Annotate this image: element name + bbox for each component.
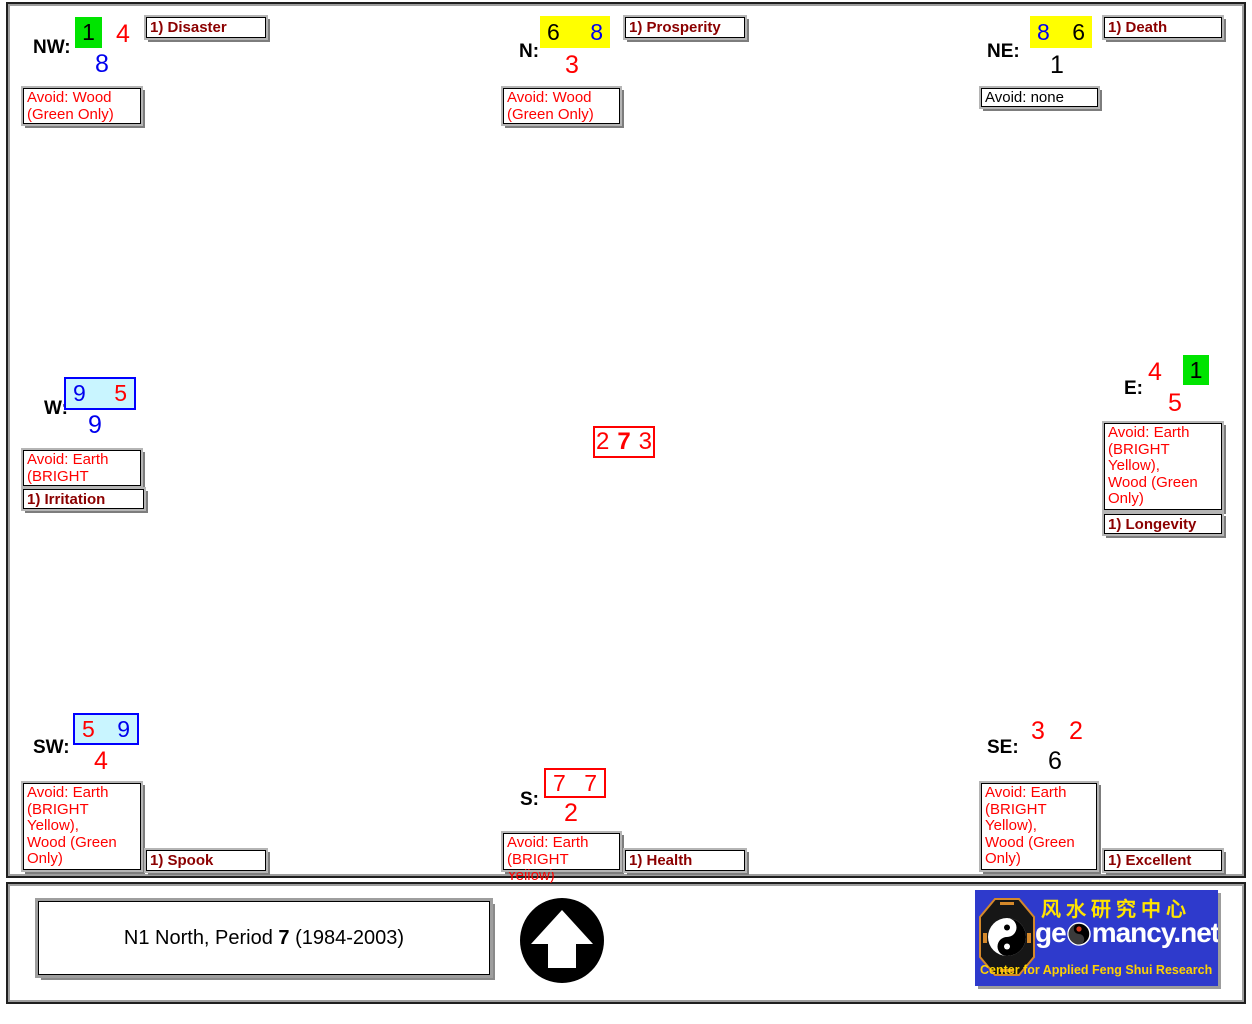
center-mountain-star: 3 [639, 428, 652, 456]
e-avoid-line: Avoid: Earth [1108, 425, 1218, 442]
geomancy-logo[interactable]: 风水研究中心 ge mancy.net Center for Applied F… [975, 890, 1218, 986]
up-arrow-icon [519, 897, 605, 984]
nw-star-box: 1 [75, 17, 102, 48]
logo-tagline: Center for Applied Feng Shui Research [980, 963, 1212, 977]
se-star-right: 2 [1069, 717, 1083, 746]
n-base-num: 3 [565, 51, 579, 80]
ne-avoid-box: Avoid: none [981, 88, 1098, 107]
e-avoid-line: Yellow), [1108, 458, 1218, 475]
n-star-box: 6 8 [540, 16, 610, 48]
se-base-num: 6 [1048, 747, 1062, 776]
e-star-box: 1 [1183, 355, 1209, 385]
sw-avoid-line: Yellow), [27, 818, 137, 835]
nw-avoid-box: Avoid: Wood (Green Only) [23, 88, 141, 124]
nw-avoid-line: Avoid: Wood [27, 90, 137, 107]
logo-wordmark-left: ge [1035, 917, 1066, 949]
se-avoid-line: Only) [985, 851, 1093, 868]
e-base-num: 5 [1168, 389, 1182, 418]
ne-star-box-num-right: 6 [1072, 19, 1085, 46]
e-avoid-line: Only) [1108, 491, 1218, 508]
sw-direction-label: SW: [33, 737, 70, 759]
yinyang-o-icon [1067, 922, 1091, 946]
s-avoid-box: Avoid: Earth (BRIGHT Yellow) [503, 833, 620, 870]
w-tag-label: 1) Irritation [27, 491, 105, 508]
e-star-box-num: 1 [1190, 357, 1203, 384]
n-avoid-line: (Green Only) [507, 107, 616, 124]
sw-base-num: 4 [94, 747, 108, 776]
s-star-box: 7 7 [544, 768, 606, 798]
ne-avoid-line: Avoid: none [985, 90, 1094, 107]
sw-avoid-line: Wood (Green [27, 835, 137, 852]
sw-star-box-num-right: 9 [117, 716, 130, 743]
logo-wordmark-right: mancy.net [1092, 917, 1218, 949]
w-star-box: 9 5 [64, 377, 136, 410]
w-star-box-num-left: 9 [73, 380, 86, 407]
se-direction-label: SE: [987, 737, 1019, 759]
n-tag-label: 1) Prosperity [629, 19, 721, 36]
ne-direction-label: NE: [987, 41, 1020, 63]
n-direction-label: N: [519, 41, 539, 63]
ne-star-box: 8 6 [1030, 16, 1092, 48]
center-star-box: 2 7 3 [593, 426, 655, 458]
se-tag-box: 1) Excellent [1104, 850, 1222, 871]
sw-tag-box: 1) Spook [146, 850, 266, 871]
chart-title-period: 7 [278, 927, 289, 950]
sw-avoid-line: (BRIGHT [27, 802, 137, 819]
chart-title-box: N1 North, Period 7 (1984-2003) [38, 901, 490, 975]
s-avoid-line: (BRIGHT Yellow) [507, 852, 616, 885]
w-base-num: 9 [88, 411, 102, 440]
s-base-num: 2 [564, 799, 578, 828]
ne-tag-label: 1) Death [1108, 19, 1167, 36]
nw-avoid-line: (Green Only) [27, 107, 137, 124]
nw-base-num: 8 [95, 50, 109, 79]
nw-tag-box: 1) Disaster [146, 17, 266, 38]
n-avoid-line: Avoid: Wood [507, 90, 616, 107]
s-star-box-num-left: 7 [553, 770, 566, 797]
n-tag-box: 1) Prosperity [625, 17, 745, 38]
logo-wordmark: ge mancy.net [1035, 917, 1218, 949]
ne-star-box-num-left: 8 [1037, 19, 1050, 46]
se-avoid-line: Wood (Green [985, 835, 1093, 852]
e-tag-box: 1) Longevity [1104, 514, 1222, 534]
se-tag-label: 1) Excellent [1108, 852, 1191, 869]
w-star-box-num-right: 5 [114, 380, 127, 407]
chart-title: N1 North, Period [124, 927, 279, 950]
center-period-star: 7 [617, 428, 630, 456]
e-star-left: 4 [1148, 358, 1162, 387]
e-avoid-box: Avoid: Earth (BRIGHT Yellow), Wood (Gree… [1104, 423, 1222, 510]
sw-star-box: 5 9 [73, 713, 139, 745]
sw-avoid-line: Avoid: Earth [27, 785, 137, 802]
s-avoid-line: Avoid: Earth [507, 835, 616, 852]
sw-tag-label: 1) Spook [150, 852, 213, 869]
nw-star-right: 4 [116, 20, 130, 49]
se-avoid-line: Yellow), [985, 818, 1093, 835]
nw-direction-label: NW: [33, 37, 71, 59]
n-star-box-num-right: 8 [590, 19, 603, 46]
se-avoid-line: (BRIGHT [985, 802, 1093, 819]
nw-star-box-num: 1 [82, 19, 95, 46]
w-avoid-box: Avoid: Earth (BRIGHT Yellow) [23, 450, 141, 486]
chart-title-years: (1984-2003) [290, 927, 405, 950]
w-tag-box: 1) Irritation [23, 489, 144, 509]
e-avoid-line: (BRIGHT [1108, 442, 1218, 459]
s-direction-label: S: [520, 789, 539, 811]
e-avoid-line: Wood (Green [1108, 475, 1218, 492]
s-tag-box: 1) Health [625, 850, 745, 871]
s-tag-label: 1) Health [629, 852, 692, 869]
se-avoid-box: Avoid: Earth (BRIGHT Yellow), Wood (Gree… [981, 783, 1097, 870]
w-avoid-line: Avoid: Earth [27, 452, 137, 469]
se-star-left: 3 [1031, 717, 1045, 746]
up-arrow-button[interactable] [519, 897, 605, 984]
e-tag-label: 1) Longevity [1108, 516, 1196, 533]
sw-star-box-num-left: 5 [82, 716, 95, 743]
ne-tag-box: 1) Death [1104, 17, 1222, 38]
center-water-star: 2 [596, 428, 609, 456]
se-avoid-line: Avoid: Earth [985, 785, 1093, 802]
s-star-box-num-right: 7 [584, 770, 597, 797]
n-avoid-box: Avoid: Wood (Green Only) [503, 88, 620, 124]
sw-avoid-line: Only) [27, 851, 137, 868]
sw-avoid-box: Avoid: Earth (BRIGHT Yellow), Wood (Gree… [23, 783, 141, 870]
n-star-box-num-left: 6 [547, 19, 560, 46]
e-direction-label: E: [1124, 378, 1143, 400]
nw-tag-label: 1) Disaster [150, 19, 227, 36]
ne-base-num: 1 [1050, 51, 1064, 80]
